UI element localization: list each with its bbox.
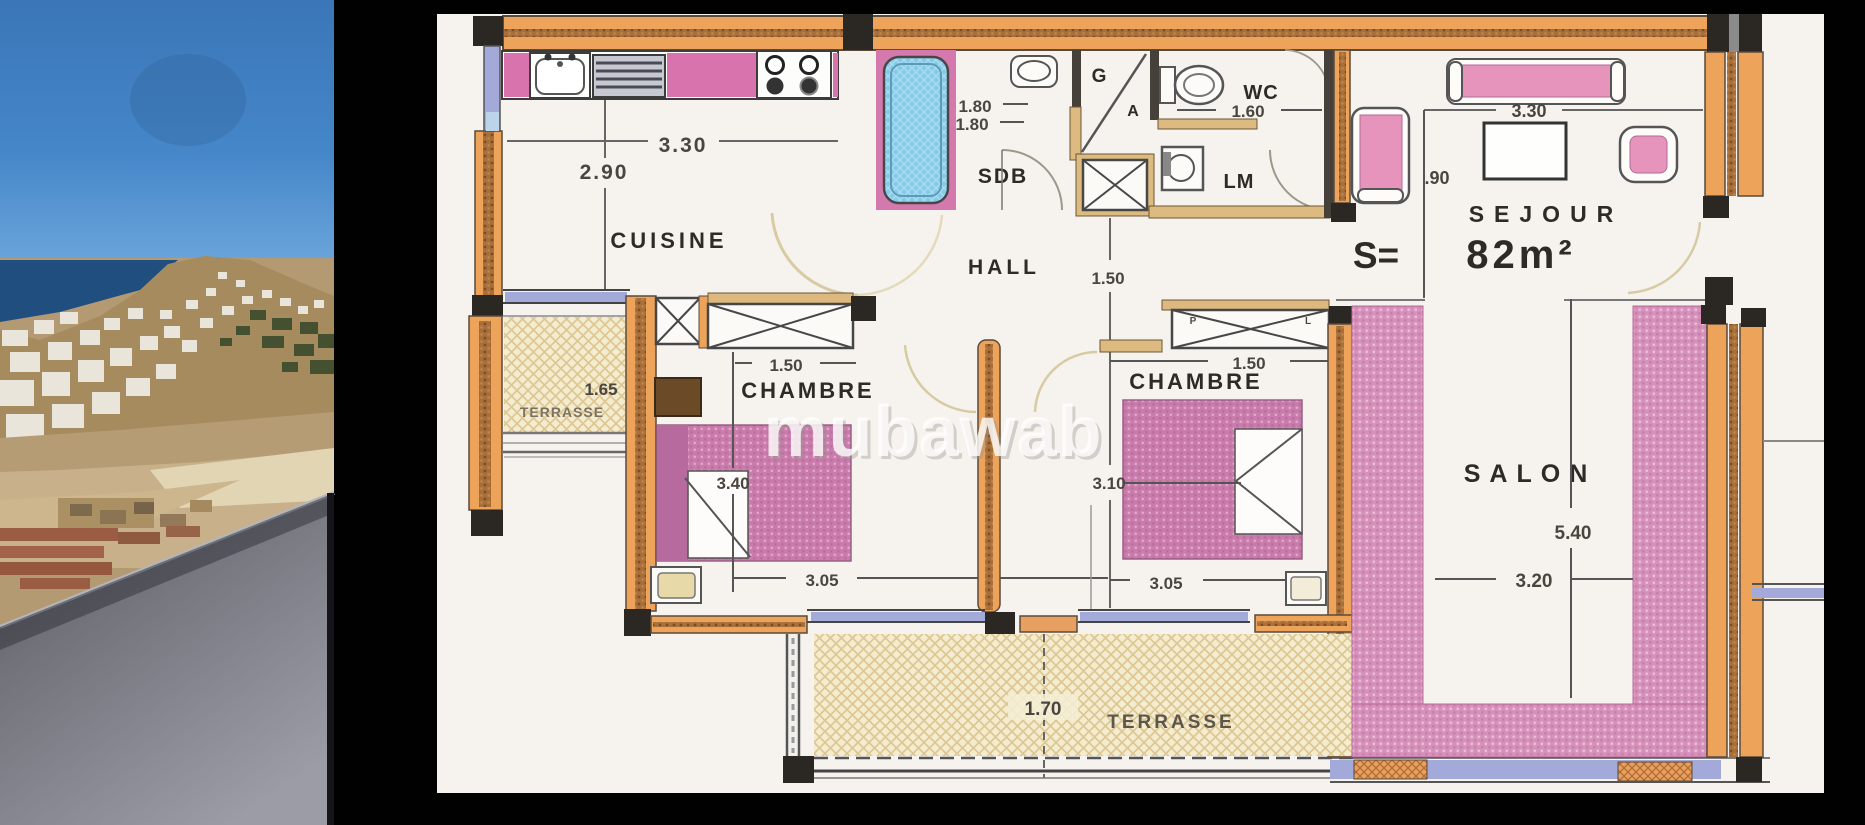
svg-text:1.60: 1.60 [1231, 102, 1264, 121]
svg-text:3.05: 3.05 [1149, 574, 1182, 593]
svg-text:L: L [1305, 316, 1311, 327]
svg-text:1.65: 1.65 [584, 380, 617, 399]
svg-text:3.10: 3.10 [1092, 474, 1125, 493]
svg-text:1.50: 1.50 [769, 356, 802, 375]
svg-text:1.50: 1.50 [1091, 269, 1124, 288]
svg-text:5.40: 5.40 [1555, 523, 1592, 544]
svg-text:3.20: 3.20 [1516, 571, 1553, 592]
svg-text:CUISINE: CUISINE [610, 228, 727, 253]
svg-text:3.05: 3.05 [805, 571, 838, 590]
svg-text:3.40: 3.40 [716, 474, 749, 493]
svg-text:LM: LM [1224, 171, 1255, 193]
svg-text:mubawab: mubawab [763, 392, 1102, 472]
svg-text:A: A [1127, 103, 1139, 120]
svg-text:G: G [1092, 66, 1107, 87]
svg-text:HALL: HALL [968, 256, 1040, 279]
svg-text:WC: WC [1243, 82, 1278, 104]
svg-text:.90: .90 [1424, 168, 1449, 188]
svg-text:TERRASSE: TERRASSE [1107, 712, 1234, 733]
svg-text:SDB: SDB [978, 165, 1028, 188]
svg-text:SEJOUR: SEJOUR [1469, 201, 1624, 227]
svg-text:CHAMBRE: CHAMBRE [1129, 369, 1262, 394]
svg-text:2.90: 2.90 [580, 161, 629, 184]
svg-text:P: P [1190, 316, 1197, 327]
svg-text:3.30: 3.30 [1511, 101, 1546, 121]
svg-text:3.30: 3.30 [659, 134, 708, 157]
svg-text:1.70: 1.70 [1025, 699, 1062, 720]
svg-text:TERRASSE: TERRASSE [520, 404, 604, 420]
svg-text:1.80: 1.80 [955, 115, 988, 134]
svg-text:SALON: SALON [1464, 460, 1597, 488]
svg-text:S=: S= [1353, 235, 1399, 276]
svg-text:1.80: 1.80 [958, 97, 991, 116]
svg-text:82m²: 82m² [1466, 233, 1575, 277]
